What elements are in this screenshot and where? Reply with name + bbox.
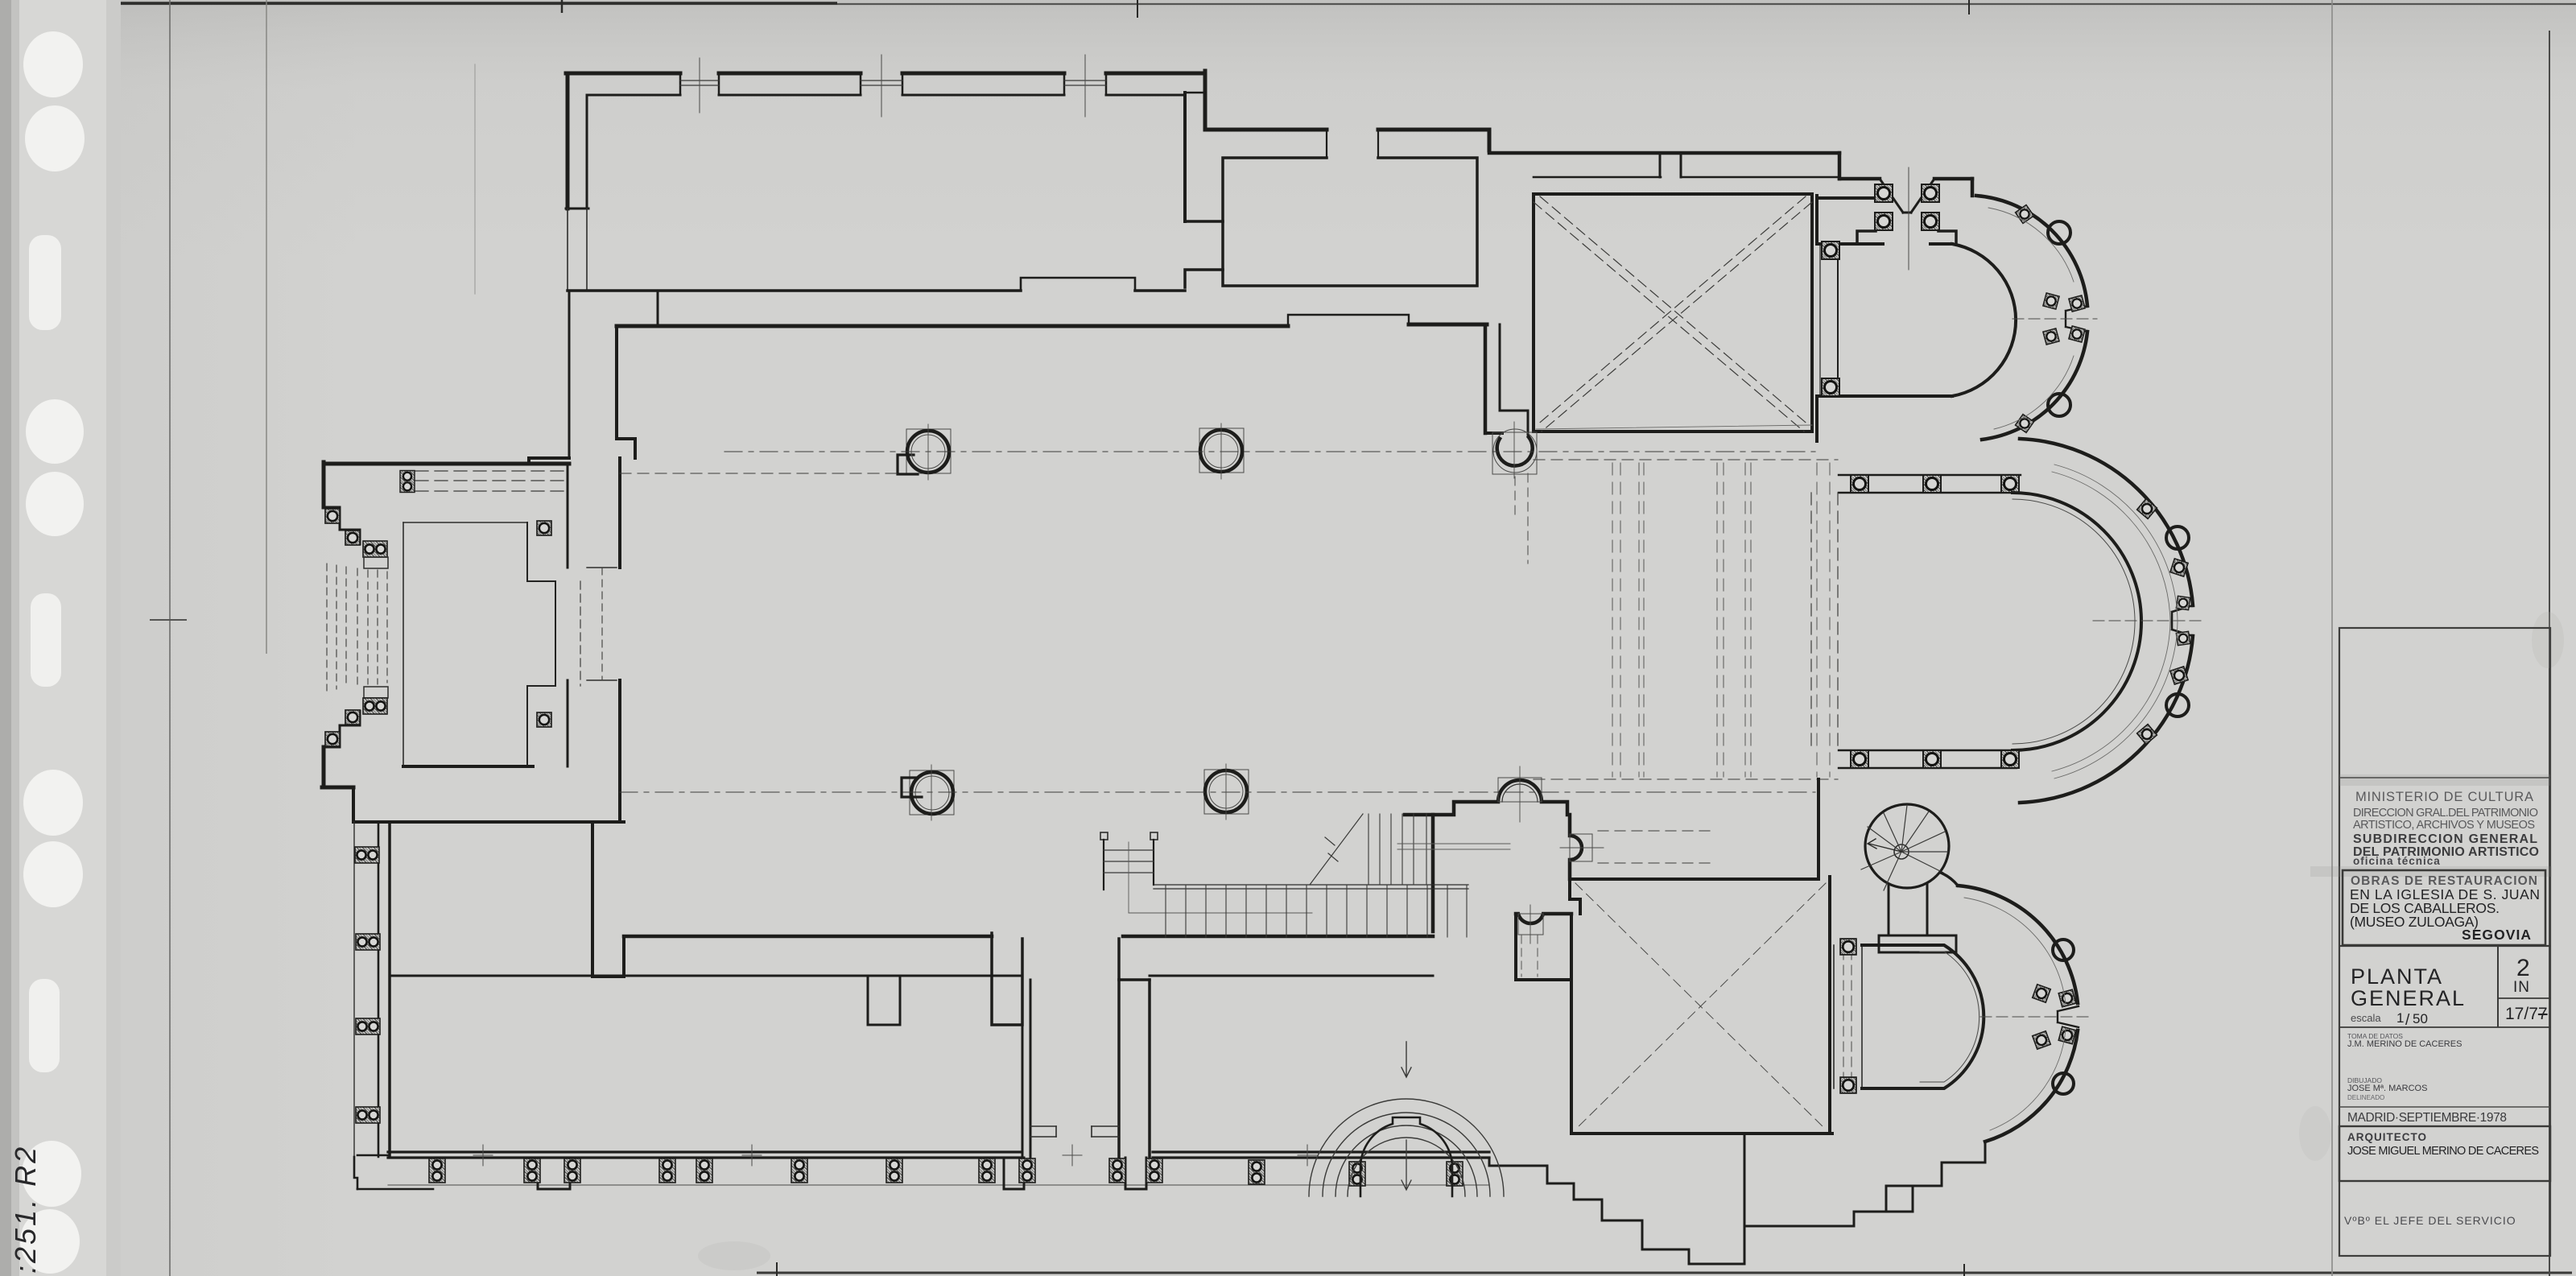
svg-text:oficina técnica: oficina técnica — [2353, 855, 2441, 867]
svg-text:(MUSEO ZULOAGA): (MUSEO ZULOAGA) — [2350, 914, 2479, 930]
svg-text:2: 2 — [2516, 955, 2530, 981]
svg-text:1: 1 — [2396, 1010, 2404, 1026]
svg-text:VºBº EL JEFE DEL SERVICIO: VºBº EL JEFE DEL SERVICIO — [2344, 1214, 2516, 1227]
svg-text::251. R2: :251. R2 — [9, 1145, 42, 1274]
svg-text:ARTISTICO, ARCHIVOS Y MUSEOS: ARTISTICO, ARCHIVOS Y MUSEOS — [2353, 819, 2535, 832]
svg-text:/: / — [2405, 1012, 2410, 1029]
svg-text:GENERAL: GENERAL — [2351, 986, 2466, 1010]
svg-text:MADRID·SEPTIEMBRE·1978: MADRID·SEPTIEMBRE·1978 — [2347, 1111, 2507, 1125]
svg-text:17/77: 17/77 — [2505, 1005, 2548, 1023]
svg-text:DELINEADO: DELINEADO — [2347, 1094, 2384, 1101]
svg-text:J.M. MERINO DE CACERES: J.M. MERINO DE CACERES — [2347, 1039, 2462, 1049]
svg-text:JOSE Mª. MARCOS: JOSE Mª. MARCOS — [2347, 1084, 2427, 1093]
svg-text:SEGOVIA: SEGOVIA — [2462, 927, 2531, 943]
svg-text:MINISTERIO DE CULTURA: MINISTERIO DE CULTURA — [2355, 790, 2534, 804]
svg-text:50: 50 — [2413, 1011, 2428, 1026]
svg-text:JOSE MIGUEL MERINO DE CACERES: JOSE MIGUEL MERINO DE CACERES — [2347, 1145, 2539, 1158]
svg-text:SUBDIRECCION GENERAL: SUBDIRECCION GENERAL — [2353, 832, 2538, 846]
svg-text:escala: escala — [2351, 1012, 2381, 1024]
svg-text:ARQUITECTO: ARQUITECTO — [2347, 1131, 2427, 1143]
svg-text:IN: IN — [2513, 979, 2530, 996]
svg-text:PLANTA: PLANTA — [2351, 964, 2443, 989]
svg-text:DIRECCION GRAL.DEL PATRIMONIO: DIRECCION GRAL.DEL PATRIMONIO — [2353, 807, 2538, 820]
